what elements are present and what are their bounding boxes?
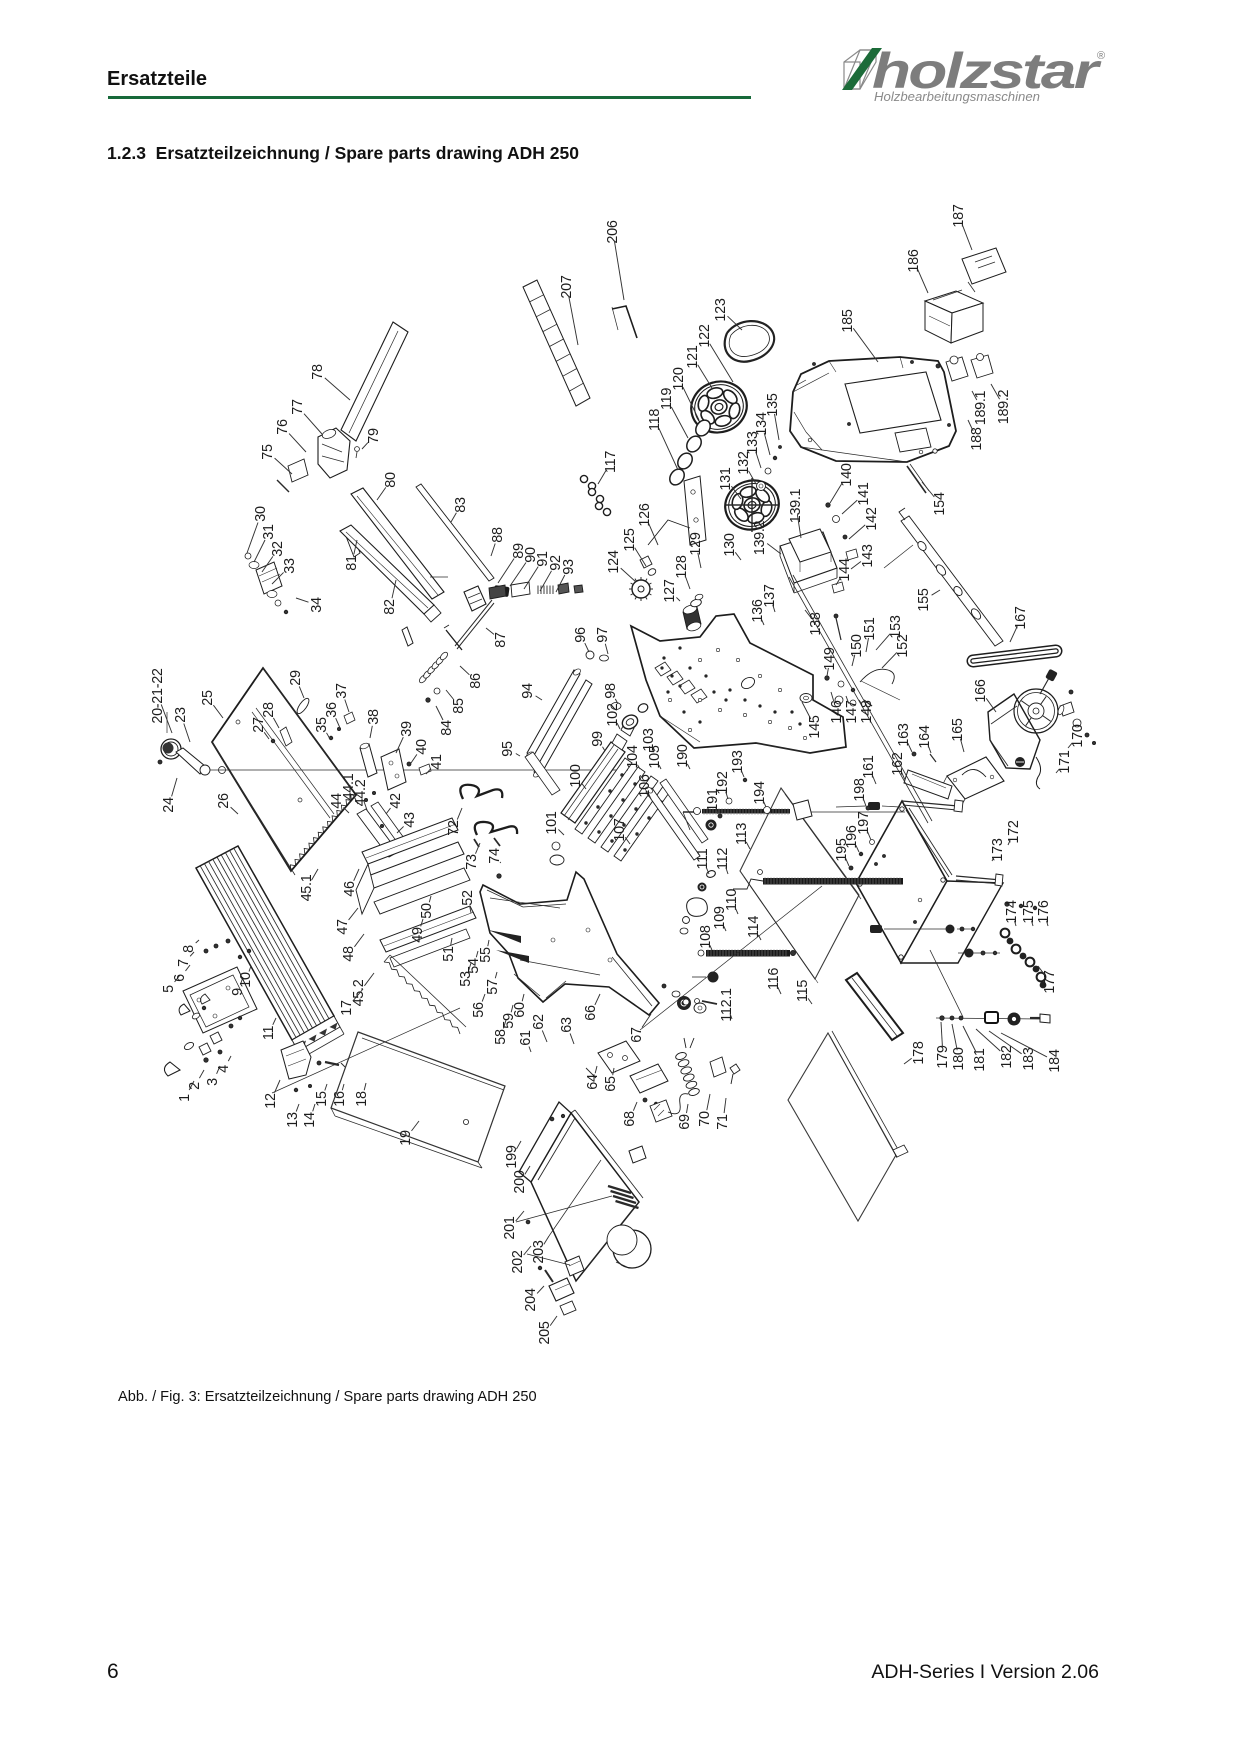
svg-text:48: 48 (341, 946, 357, 962)
svg-text:100: 100 (568, 764, 584, 787)
svg-text:146: 146 (829, 700, 845, 723)
svg-text:39: 39 (399, 721, 415, 737)
svg-text:149: 149 (822, 647, 838, 670)
svg-text:118: 118 (647, 409, 663, 431)
svg-text:181: 181 (972, 1048, 988, 1071)
svg-text:104: 104 (625, 745, 641, 768)
svg-text:28: 28 (261, 702, 277, 718)
svg-text:50: 50 (419, 903, 435, 919)
svg-text:161: 161 (861, 755, 877, 778)
svg-text:55: 55 (478, 947, 494, 963)
svg-text:135: 135 (765, 393, 781, 416)
svg-text:172: 172 (1006, 820, 1022, 843)
svg-text:1: 1 (177, 1094, 193, 1102)
svg-text:126: 126 (637, 503, 653, 526)
svg-text:33: 33 (282, 558, 298, 574)
svg-text:15: 15 (314, 1091, 330, 1107)
svg-text:182: 182 (999, 1045, 1015, 1068)
svg-text:127: 127 (662, 579, 678, 602)
svg-text:153: 153 (888, 615, 904, 638)
svg-text:30: 30 (253, 506, 269, 522)
svg-text:25: 25 (200, 690, 216, 706)
svg-text:198: 198 (852, 778, 868, 801)
svg-text:71: 71 (715, 1114, 731, 1130)
svg-text:69: 69 (677, 1114, 693, 1130)
svg-text:162: 162 (890, 752, 906, 775)
svg-text:164: 164 (917, 725, 933, 748)
svg-text:113: 113 (734, 823, 750, 845)
svg-text:65: 65 (603, 1076, 619, 1092)
svg-text:192: 192 (715, 771, 731, 794)
svg-text:112: 112 (715, 848, 731, 870)
svg-text:110: 110 (724, 889, 740, 911)
svg-text:11: 11 (261, 1026, 277, 1041)
svg-text:139.1: 139.1 (788, 488, 804, 523)
svg-text:145: 145 (807, 715, 823, 738)
svg-text:189.1: 189.1 (973, 390, 989, 425)
svg-text:188: 188 (969, 427, 985, 450)
svg-text:31: 31 (261, 524, 277, 540)
svg-text:94: 94 (520, 683, 536, 699)
svg-text:17: 17 (339, 1000, 355, 1016)
svg-text:184: 184 (1047, 1049, 1063, 1072)
svg-text:137: 137 (762, 584, 778, 607)
svg-text:202: 202 (510, 1250, 526, 1273)
svg-text:67: 67 (629, 1027, 645, 1043)
svg-text:87: 87 (493, 632, 509, 648)
svg-text:23: 23 (173, 707, 189, 723)
svg-text:114: 114 (746, 916, 762, 938)
svg-text:120: 120 (671, 367, 687, 390)
svg-text:193: 193 (730, 750, 746, 773)
svg-text:86: 86 (468, 673, 484, 689)
svg-text:7: 7 (176, 959, 192, 967)
svg-text:204: 204 (523, 1288, 539, 1311)
svg-text:29: 29 (288, 670, 304, 686)
svg-text:80: 80 (383, 472, 399, 488)
svg-text:72: 72 (446, 820, 462, 836)
svg-text:85: 85 (451, 698, 467, 714)
svg-text:93: 93 (561, 559, 577, 575)
svg-text:57: 57 (485, 979, 501, 995)
svg-text:165: 165 (950, 718, 966, 741)
svg-text:101: 101 (544, 811, 560, 834)
svg-text:139.2: 139.2 (752, 520, 768, 555)
svg-text:36: 36 (324, 702, 340, 718)
svg-text:5: 5 (161, 985, 177, 993)
svg-text:37: 37 (334, 683, 350, 699)
svg-text:123: 123 (713, 298, 729, 321)
svg-text:49: 49 (410, 927, 426, 943)
svg-text:119: 119 (659, 388, 675, 410)
svg-text:177: 177 (1042, 970, 1058, 993)
svg-text:180: 180 (951, 1047, 967, 1070)
svg-text:46: 46 (342, 881, 358, 897)
svg-text:178: 178 (911, 1041, 927, 1064)
svg-text:76: 76 (275, 419, 291, 435)
svg-text:122: 122 (697, 324, 713, 347)
svg-text:34: 34 (309, 597, 325, 613)
svg-text:40: 40 (414, 739, 430, 755)
svg-text:95: 95 (500, 741, 516, 757)
svg-text:42: 42 (388, 793, 404, 809)
svg-text:163: 163 (896, 723, 912, 746)
svg-text:2: 2 (187, 1082, 203, 1090)
svg-text:8: 8 (181, 945, 197, 953)
svg-text:117: 117 (603, 451, 619, 473)
svg-text:102: 102 (605, 703, 621, 726)
svg-text:144: 144 (837, 558, 853, 581)
svg-text:81: 81 (344, 555, 360, 571)
svg-text:106: 106 (637, 774, 653, 797)
svg-text:56: 56 (471, 1002, 487, 1018)
svg-text:82: 82 (382, 599, 398, 615)
svg-text:73: 73 (464, 854, 480, 870)
svg-text:20-21-22: 20-21-22 (150, 668, 166, 724)
svg-text:68: 68 (622, 1111, 638, 1127)
svg-text:14: 14 (302, 1112, 318, 1128)
svg-text:61: 61 (518, 1030, 534, 1046)
svg-text:98: 98 (603, 683, 619, 699)
svg-text:173: 173 (990, 838, 1006, 861)
svg-text:176: 176 (1036, 900, 1052, 923)
svg-text:74: 74 (487, 848, 503, 864)
svg-text:174: 174 (1004, 900, 1020, 923)
svg-text:70: 70 (697, 1111, 713, 1127)
svg-text:138: 138 (808, 612, 824, 635)
svg-text:77: 77 (290, 399, 306, 415)
svg-text:9: 9 (230, 988, 246, 996)
svg-text:142: 142 (864, 507, 880, 530)
svg-text:60: 60 (512, 1002, 528, 1018)
svg-text:125: 125 (622, 528, 638, 551)
svg-text:47: 47 (335, 919, 351, 935)
svg-text:167: 167 (1013, 606, 1029, 629)
svg-text:38: 38 (366, 709, 382, 725)
svg-text:186: 186 (906, 249, 922, 272)
svg-text:66: 66 (583, 1005, 599, 1021)
svg-text:171: 171 (1057, 750, 1073, 773)
svg-text:3: 3 (205, 1078, 221, 1086)
svg-text:41: 41 (429, 754, 445, 770)
svg-text:124: 124 (606, 550, 622, 573)
svg-text:121: 121 (685, 345, 701, 368)
svg-text:147: 147 (844, 700, 860, 723)
svg-text:175: 175 (1021, 900, 1037, 923)
svg-text:187: 187 (951, 204, 967, 227)
svg-text:58: 58 (493, 1029, 509, 1045)
svg-text:12: 12 (263, 1093, 279, 1109)
svg-text:43: 43 (402, 812, 418, 828)
svg-text:51: 51 (441, 946, 457, 962)
svg-text:97: 97 (595, 627, 611, 643)
svg-text:189.2: 189.2 (996, 389, 1012, 424)
svg-text:190: 190 (675, 744, 691, 767)
svg-text:18: 18 (354, 1091, 370, 1107)
svg-text:19: 19 (398, 1130, 414, 1146)
svg-text:83: 83 (453, 497, 469, 513)
svg-text:116: 116 (766, 968, 782, 990)
svg-text:79: 79 (366, 428, 382, 444)
svg-text:105: 105 (647, 745, 663, 768)
svg-text:88: 88 (490, 527, 506, 543)
svg-text:143: 143 (860, 544, 876, 567)
svg-text:128: 128 (674, 555, 690, 578)
svg-text:78: 78 (310, 364, 326, 380)
svg-text:194: 194 (752, 781, 768, 804)
svg-text:35: 35 (314, 717, 330, 733)
svg-text:63: 63 (559, 1017, 575, 1033)
svg-text:154: 154 (932, 492, 948, 515)
svg-text:201: 201 (502, 1216, 518, 1239)
svg-text:84: 84 (439, 720, 455, 736)
svg-text:96: 96 (573, 627, 589, 643)
svg-text:111: 111 (695, 848, 711, 869)
svg-text:44.2: 44.2 (353, 779, 369, 806)
svg-text:170: 170 (1070, 724, 1086, 747)
svg-text:206: 206 (605, 220, 621, 243)
svg-text:140: 140 (839, 463, 855, 486)
svg-text:4: 4 (216, 1065, 232, 1073)
svg-text:99: 99 (590, 731, 606, 747)
svg-text:24: 24 (161, 797, 177, 813)
svg-text:151: 151 (862, 617, 878, 640)
svg-text:141: 141 (856, 482, 872, 505)
svg-text:13: 13 (285, 1112, 301, 1128)
svg-text:64: 64 (585, 1074, 601, 1090)
svg-text:129: 129 (688, 532, 704, 555)
svg-text:155: 155 (916, 588, 932, 611)
svg-text:26: 26 (216, 793, 232, 809)
svg-text:112.1: 112.1 (719, 988, 735, 1022)
svg-text:62: 62 (531, 1014, 547, 1030)
svg-text:179: 179 (935, 1045, 951, 1068)
svg-text:6: 6 (172, 974, 188, 982)
svg-text:10: 10 (238, 972, 254, 988)
svg-text:199: 199 (504, 1145, 520, 1168)
svg-text:32: 32 (270, 541, 286, 557)
svg-text:16: 16 (332, 1091, 348, 1107)
svg-text:195: 195 (834, 838, 850, 861)
svg-text:207: 207 (559, 275, 575, 298)
svg-text:27: 27 (251, 717, 267, 733)
svg-text:75: 75 (260, 444, 276, 460)
svg-text:52: 52 (460, 890, 476, 906)
